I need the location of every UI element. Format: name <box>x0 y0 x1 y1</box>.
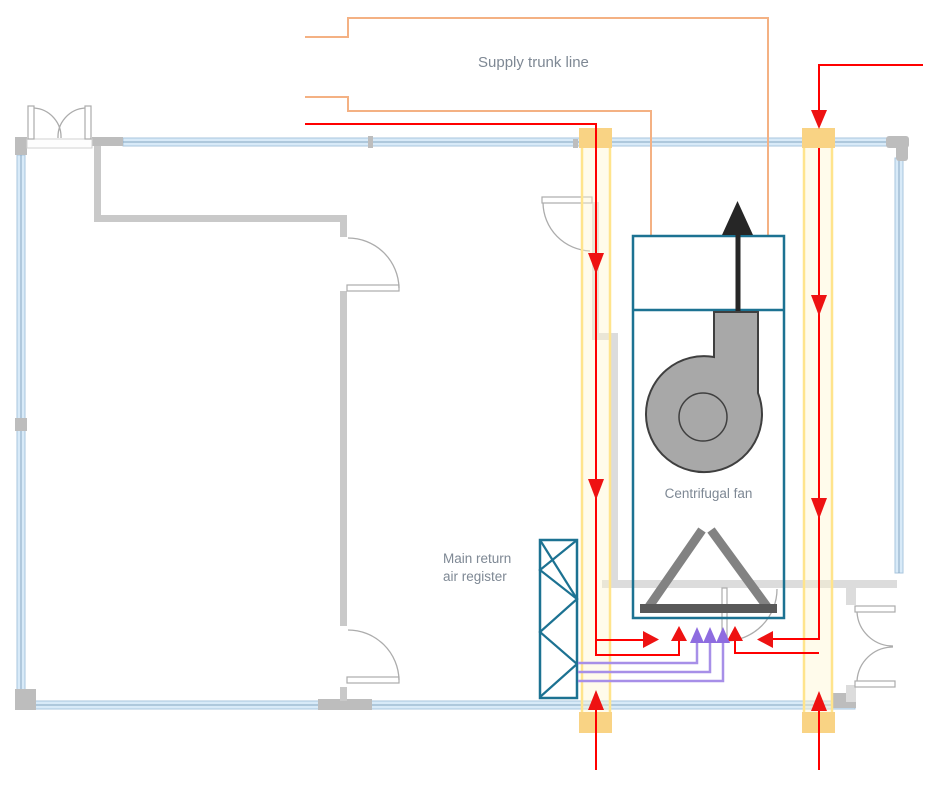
wall-connector-blocks <box>15 136 909 710</box>
plenum-door <box>722 588 777 641</box>
office-door-top <box>347 238 399 291</box>
entry-double-door <box>27 106 92 148</box>
air-handling-unit <box>633 201 784 618</box>
main-return-air-register-symbol <box>540 540 577 698</box>
filter-symbol <box>640 530 777 613</box>
return-flow-arrowheads <box>690 627 730 643</box>
centrifugal-fan-symbol <box>646 312 762 472</box>
main-return-register-label: Main return air register <box>443 550 511 586</box>
office-door-bottom <box>347 630 399 683</box>
centrifugal-fan-label: Centrifugal fan <box>633 485 784 503</box>
floor-plan-canvas <box>0 0 939 787</box>
main-return-register-label-line1: Main return <box>443 550 511 568</box>
exit-double-door <box>855 606 895 687</box>
main-return-register-label-line2: air register <box>443 568 511 586</box>
supply-trunk-label: Supply trunk line <box>478 54 589 72</box>
exhaust-arrow <box>722 201 753 312</box>
supply-trunk-lines <box>305 18 768 236</box>
hvac-floor-plan-diagram: Supply trunk line Centrifugal fan Main r… <box>0 0 939 787</box>
exterior-walls <box>15 136 909 710</box>
